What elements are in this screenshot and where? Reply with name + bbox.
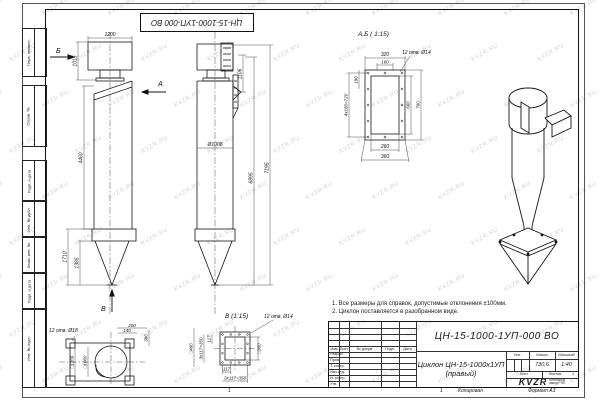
front-dim-lines — [66, 36, 132, 285]
dim-side-h2: 7195 — [265, 162, 271, 173]
isometric-outline — [500, 88, 571, 284]
dim-ab-190: 190 — [354, 76, 359, 84]
dim-front-cone-inner: 1385 — [75, 257, 81, 268]
tb-company: KVZR Котельный завод РЭП — [506, 378, 578, 388]
front-arrow-a-label: А — [157, 81, 163, 88]
front-arrow-v-label: В — [101, 306, 106, 313]
dim-bf-sq-outer: □1206 — [70, 355, 75, 368]
bottom-flange-holes-note: 12 отв. Ø18 — [49, 328, 78, 334]
dim-front-width: 1200 — [104, 32, 115, 38]
dim-v-pitch-bottom: 3x117=350 — [224, 376, 247, 381]
front-outline — [88, 42, 136, 285]
tb-lit-label: Лит. — [506, 351, 529, 359]
tb-scale-label: Масштаб — [555, 351, 578, 359]
tb-doc-number: ЦН-15-1000-1УП-000 ВО — [416, 322, 578, 351]
section-ab-outline — [365, 70, 405, 140]
dim-v-sq460: □460 — [189, 343, 194, 354]
section-ab-holes — [367, 72, 403, 138]
watermark-text: KVZR.RU — [0, 0, 4, 17]
tb-row-utv: Утв. — [329, 381, 350, 387]
section-ab-title: А,Б ( 1:15) — [357, 31, 389, 38]
bottom-flange-view: 12 отв. Ø18 □1206 □1060 200 140 380 — [45, 322, 180, 386]
section-v-title: В (1:15) — [225, 313, 248, 320]
watermark-text: KVZR.RU — [0, 365, 4, 385]
dim-side-h1: 6895 — [249, 172, 255, 183]
dim-front-body-height: 4460 — [79, 152, 85, 163]
copied-label: Копировал — [458, 388, 483, 394]
dim-bf-140: 140 — [123, 328, 131, 333]
dim-side-diameter: Ø1008 — [206, 142, 222, 148]
dim-ab-660: 660 — [406, 101, 411, 109]
side-field-sprav: Справ. № — [22, 85, 47, 147]
tb-product-subtitle: (правый) — [445, 369, 476, 378]
watermark-text: KVZR.RU — [0, 181, 4, 201]
section-ab-holes-note: 12 отв. Ø14 — [402, 50, 431, 56]
side-field-vzam-label: Взам. инв. № — [26, 243, 31, 268]
isometric-view — [488, 78, 573, 308]
tb-product-name: Циклон ЦН-15-1000х1УП (правый) — [416, 351, 506, 387]
dim-v-117-left: 117 — [207, 335, 212, 343]
inverted-doc-stamp-text: ЦН-15-1000-1УП-000 ВО — [151, 18, 242, 27]
side-field-podp2: Подп. и дата — [22, 272, 47, 310]
drawing-sheet: KVZR.RUKVZR.RUKVZR.RUKVZR.RUKVZR.RUKVZR.… — [0, 0, 600, 400]
tb-col-data: Дата — [399, 346, 416, 352]
side-field-inv-podl-label: Инв. № подл. — [26, 336, 31, 361]
front-view: Б А В 1200 1015 4460 1710 1385 — [48, 28, 183, 320]
note-2: 2. Циклон поставляется в разобранном вид… — [332, 308, 576, 316]
dim-ab-pitch: 4x180=720 — [344, 93, 349, 116]
side-field-podp1: Подп. и дата — [22, 160, 47, 202]
side-outline — [195, 43, 241, 285]
dim-bf-380: 380 — [144, 334, 149, 342]
fold-mark-2: 1 — [440, 388, 443, 394]
dim-v-pitch-left: 3x117=350 — [199, 337, 204, 360]
side-field-perv: Перв. примен. — [22, 28, 47, 77]
tb-col-podp: Подп. — [381, 346, 399, 352]
front-arrow-b-label: Б — [56, 48, 61, 55]
company-caption-line2: завод РЭП — [549, 381, 565, 385]
title-block: Изм Лист № докум. Подп. Дата Разраб. Про… — [328, 321, 579, 388]
company-logo: KVZR — [519, 377, 548, 387]
tb-scale-value: 1:40 — [555, 359, 578, 372]
notes: 1. Все размеры для справок, допустимые о… — [332, 300, 576, 316]
tb-col-doc: № докум. — [349, 346, 381, 352]
section-ab-view: А,Б ( 1:15) 12 отв. Ø14 320 160 190 4x18… — [338, 20, 468, 175]
side-field-inv-dubl-label: Инв. № дубл. — [26, 207, 31, 232]
bottom-flange-dim-lines — [72, 328, 149, 381]
dim-v-117-bottom: 117 — [223, 367, 231, 372]
side-field-perv-label: Перв. примен. — [26, 39, 31, 66]
side-field-podp1-label: Подп. и дата — [26, 169, 31, 193]
side-field-podp2-label: Подп. и дата — [26, 279, 31, 303]
dim-bf-sq-bolts: □1060 — [83, 355, 88, 368]
dim-ab-360: 360 — [381, 154, 390, 160]
fold-mark-1: 1 — [228, 388, 231, 394]
side-field-inv-podl: Инв. № подл. — [22, 308, 47, 388]
dim-front-box-height: 1015 — [73, 55, 79, 66]
section-v-view: В (1:15) 12 отв. Ø14 □460 3x117=350 117 … — [180, 306, 325, 386]
side-field-vzam: Взам. инв. № — [22, 236, 47, 274]
tb-mass-value: 730,6 — [529, 359, 555, 372]
dim-ab-160: 160 — [381, 60, 389, 65]
side-field-sprav-label: Справ. № — [26, 107, 31, 125]
front-view-arrows — [50, 55, 166, 312]
tb-product-title: Циклон ЦН-15-1000х1УП — [418, 360, 505, 369]
section-v-holes-note: 12 отв. Ø14 — [264, 314, 293, 320]
side-field-inv-dubl: Инв. № дубл. — [22, 200, 47, 238]
watermark-text: KVZR.RU — [0, 89, 4, 109]
dim-ab-760: 760 — [416, 101, 421, 109]
format-label: Формат А3 — [528, 388, 555, 394]
inverted-doc-stamp: ЦН-15-1000-1УП-000 ВО — [140, 13, 254, 32]
dim-ab-320: 320 — [381, 52, 390, 58]
dim-side-flange: 1106 — [238, 68, 244, 79]
side-view: 1106 Ø1008 6895 7195 — [185, 28, 290, 320]
watermark-text: KVZR.RU — [0, 273, 4, 293]
dim-v-sq300: □300 — [257, 343, 262, 354]
dim-front-cone: 1710 — [63, 251, 69, 262]
company-caption: Котельный завод РЭП — [549, 379, 565, 386]
dim-ab-260: 260 — [380, 144, 390, 150]
tb-mass-label: Масса — [529, 351, 555, 359]
note-1: 1. Все размеры для справок, допустимые о… — [332, 300, 576, 308]
